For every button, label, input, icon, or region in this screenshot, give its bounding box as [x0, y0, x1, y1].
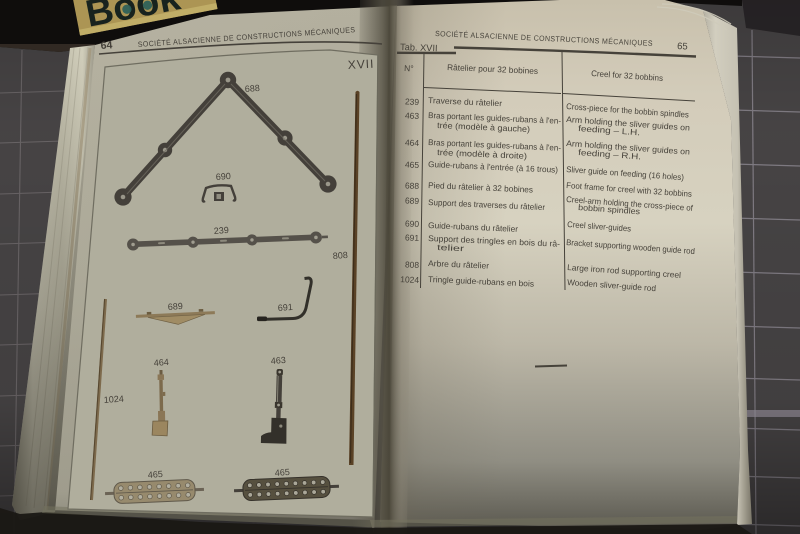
svg-text:688: 688: [244, 83, 260, 94]
svg-text:464: 464: [153, 357, 169, 368]
svg-text:465: 465: [405, 159, 420, 170]
svg-text:465: 465: [147, 469, 163, 480]
svg-text:1024: 1024: [400, 274, 420, 285]
svg-text:808: 808: [405, 259, 420, 270]
svg-text:64: 64: [100, 39, 113, 52]
svg-text:690: 690: [215, 171, 231, 182]
svg-text:808: 808: [332, 250, 348, 261]
svg-text:239: 239: [213, 225, 229, 236]
svg-text:Tab. XVII: Tab. XVII: [400, 42, 438, 53]
svg-text:691: 691: [277, 302, 293, 313]
svg-text:689: 689: [405, 195, 420, 206]
svg-text:65: 65: [677, 41, 688, 53]
svg-text:690: 690: [405, 218, 420, 229]
svg-text:689: 689: [167, 301, 183, 312]
svg-text:465: 465: [274, 467, 290, 478]
svg-text:239: 239: [405, 96, 420, 107]
svg-text:N°: N°: [404, 63, 414, 73]
svg-text:telier: telier: [437, 242, 465, 253]
svg-text:463: 463: [270, 355, 286, 366]
svg-text:1024: 1024: [103, 394, 124, 405]
svg-text:691: 691: [405, 232, 420, 243]
svg-text:XVII: XVII: [347, 57, 374, 72]
svg-text:464: 464: [405, 137, 420, 148]
svg-text:688: 688: [405, 180, 420, 191]
svg-text:463: 463: [405, 110, 420, 121]
